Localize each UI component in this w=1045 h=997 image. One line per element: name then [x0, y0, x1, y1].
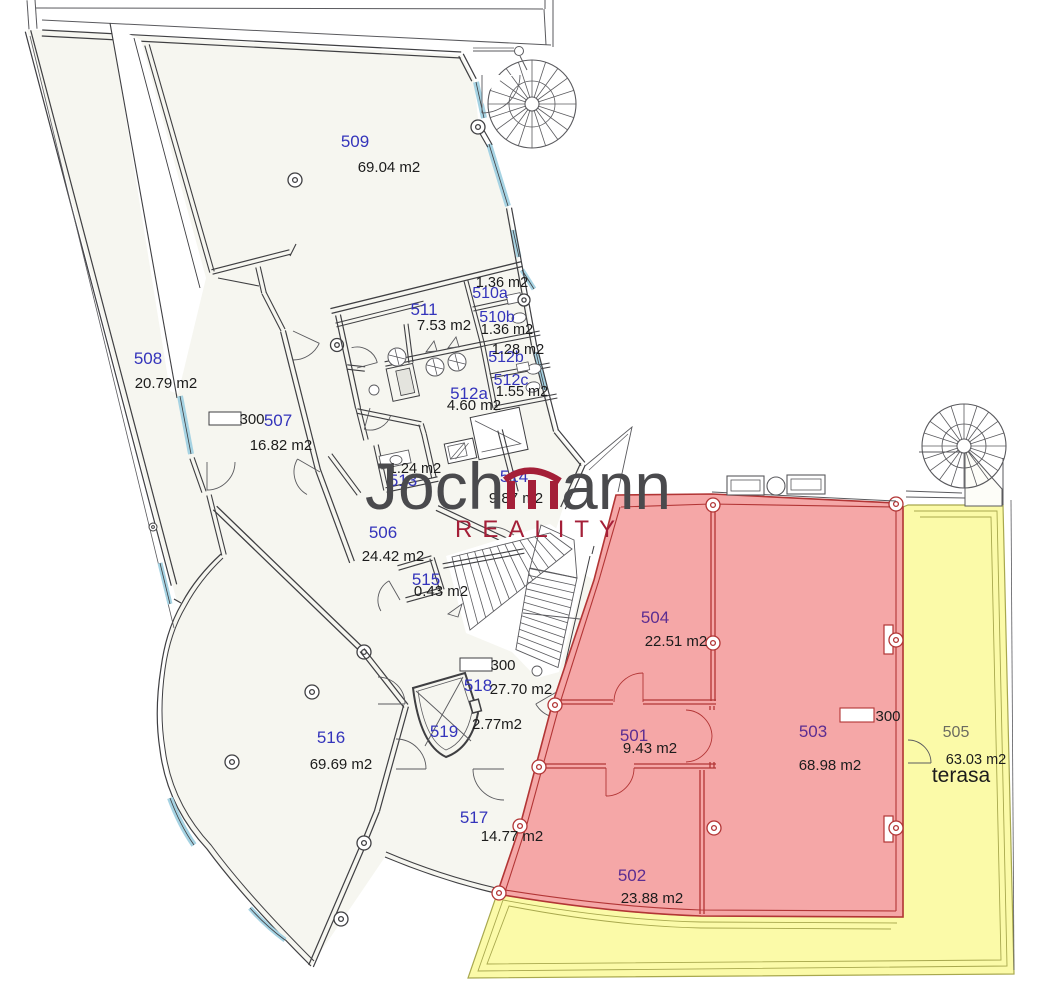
svg-text:507: 507: [264, 411, 292, 430]
svg-text:16.82 m2: 16.82 m2: [250, 437, 313, 454]
svg-text:0.43 m2: 0.43 m2: [414, 583, 468, 600]
svg-text:14.77 m2: 14.77 m2: [481, 828, 544, 845]
svg-text:4.60 m2: 4.60 m2: [447, 397, 501, 414]
svg-text:503: 503: [799, 722, 827, 741]
svg-text:2.77m2: 2.77m2: [472, 716, 522, 733]
svg-text:1.36 m2: 1.36 m2: [476, 275, 528, 291]
svg-text:517: 517: [460, 808, 488, 827]
svg-text:300: 300: [239, 411, 264, 428]
svg-text:Joch: Joch: [365, 449, 504, 523]
svg-text:9.43 m2: 9.43 m2: [623, 740, 677, 757]
svg-text:24.42 m2: 24.42 m2: [362, 548, 425, 565]
svg-text:terasa: terasa: [932, 764, 991, 787]
svg-text:REALITY: REALITY: [455, 516, 625, 543]
svg-text:506: 506: [369, 523, 397, 542]
svg-text:69.04 m2: 69.04 m2: [358, 159, 421, 176]
svg-text:ann: ann: [561, 449, 671, 523]
svg-text:7.53 m2: 7.53 m2: [417, 317, 471, 334]
svg-text:300: 300: [490, 657, 515, 674]
svg-text:504: 504: [641, 608, 669, 627]
svg-text:518: 518: [464, 676, 492, 695]
svg-text:300: 300: [875, 708, 900, 725]
svg-text:508: 508: [134, 349, 162, 368]
svg-text:1.36 m2: 1.36 m2: [481, 322, 533, 338]
svg-text:509: 509: [341, 132, 369, 151]
svg-text:27.70 m2: 27.70 m2: [490, 681, 553, 698]
svg-text:68.98 m2: 68.98 m2: [799, 757, 862, 774]
svg-text:519: 519: [430, 722, 458, 741]
svg-text:20.79 m2: 20.79 m2: [135, 375, 198, 392]
svg-text:69.69 m2: 69.69 m2: [310, 756, 373, 773]
svg-text:502: 502: [618, 866, 646, 885]
svg-text:516: 516: [317, 728, 345, 747]
svg-text:22.51 m2: 22.51 m2: [645, 633, 708, 650]
svg-text:1.55 m2: 1.55 m2: [496, 384, 548, 400]
svg-text:23.88 m2: 23.88 m2: [621, 890, 684, 907]
svg-text:505: 505: [943, 724, 970, 741]
svg-text:1.28 m2: 1.28 m2: [492, 342, 544, 358]
